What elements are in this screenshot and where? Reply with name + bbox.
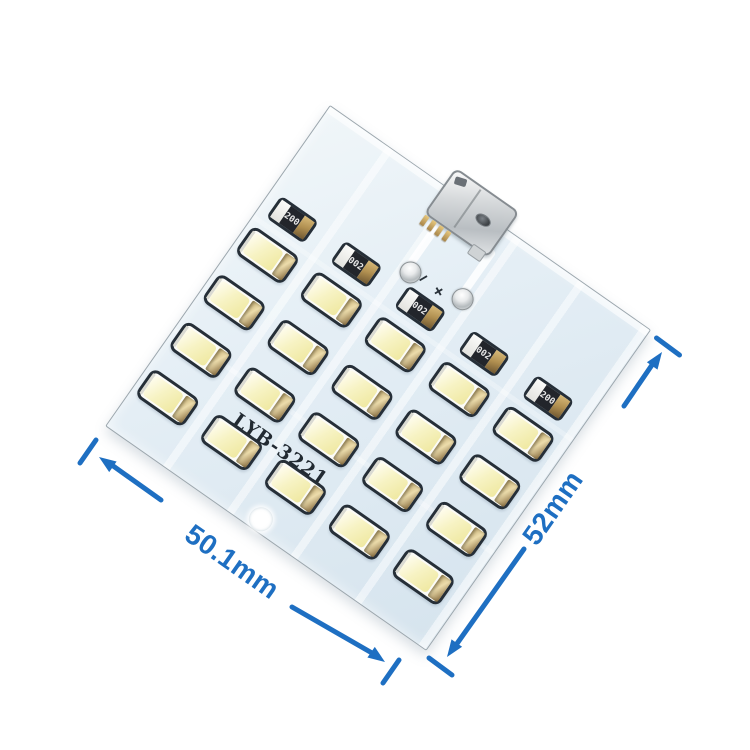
plus-mark: + — [430, 282, 447, 302]
width-dim-arrowhead — [99, 457, 117, 472]
height-dim-arrowhead — [647, 352, 662, 370]
height-dim-line — [624, 362, 654, 406]
led-smd — [167, 320, 234, 381]
resistor: 200 — [521, 374, 574, 423]
width-dim-line — [292, 607, 372, 653]
usb-shell-notch — [454, 176, 468, 187]
led-smd — [328, 362, 395, 423]
resistor: 002 — [458, 330, 511, 379]
led-smd — [423, 499, 490, 560]
resistor: 002 — [330, 240, 383, 289]
product-photo: − + 200 002 002 002 200 — [0, 0, 750, 750]
copper-trace-bands — [107, 106, 650, 649]
width-dim-tick — [80, 440, 96, 463]
height-dim-tick — [429, 658, 452, 675]
mounting-hole — [244, 503, 277, 536]
width-dim-arrowhead — [367, 647, 385, 662]
resistor: 200 — [266, 195, 319, 244]
led-smd — [134, 367, 201, 428]
led-pcb-board: − + 200 002 002 002 200 — [105, 105, 651, 651]
led-smd — [265, 317, 332, 378]
usb-shell-hole — [473, 211, 493, 230]
led-smd — [201, 272, 268, 333]
width-dim-line — [109, 463, 161, 500]
width-dim-tick — [383, 660, 399, 683]
led-smd — [326, 502, 393, 563]
led-smd — [359, 454, 426, 515]
led-smd — [390, 546, 457, 607]
solder-pad-plus — [447, 284, 478, 315]
led-smd — [392, 406, 459, 467]
usb-pin — [441, 230, 451, 242]
height-dim-tick — [657, 338, 680, 355]
led-smd — [456, 451, 523, 512]
height-dim-arrowhead — [447, 639, 462, 657]
